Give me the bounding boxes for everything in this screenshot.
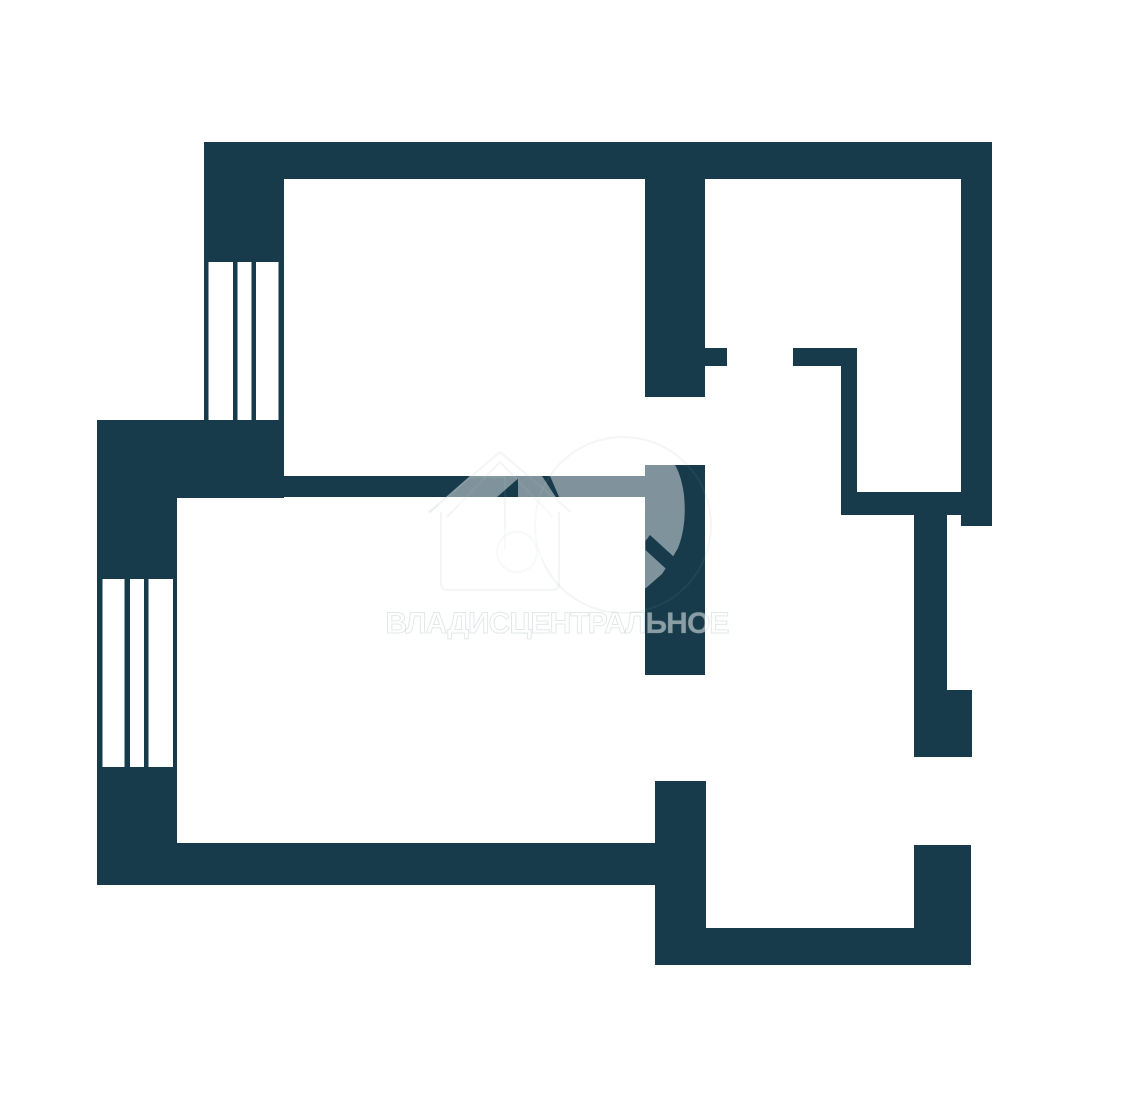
svg-text:ВЛАДИСЦЕНТРАЛЬНОЕ: ВЛАДИСЦЕНТРАЛЬНОЕ (386, 607, 729, 640)
